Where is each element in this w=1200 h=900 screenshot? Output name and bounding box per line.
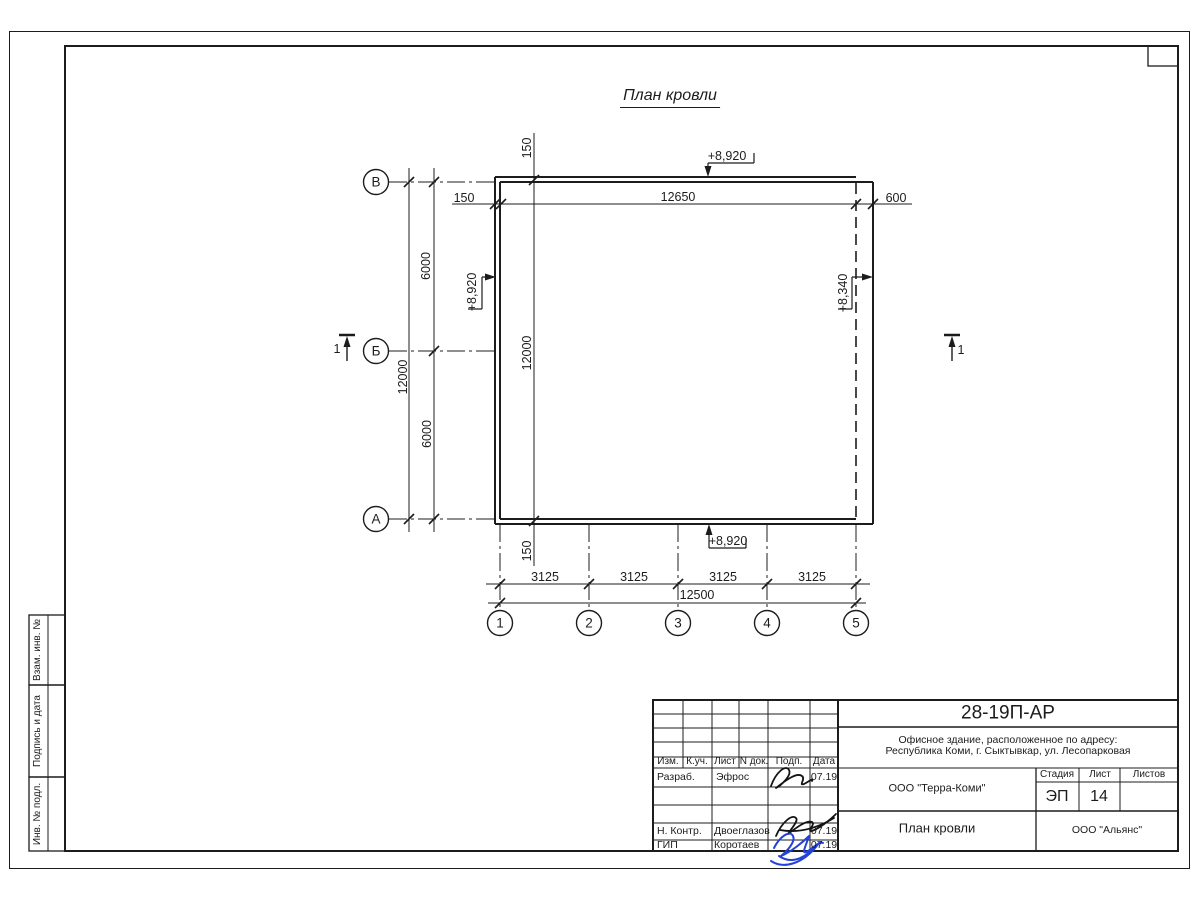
section-label-left: 1 <box>334 343 341 356</box>
rev-header-podp: Подп. <box>776 757 803 767</box>
dim-bottom-span-2: 3125 <box>620 571 648 584</box>
dim-offset-left: 150 <box>454 192 475 205</box>
dim-bottom-span-1: 3125 <box>531 571 559 584</box>
sheet-header: Лист <box>1089 770 1111 780</box>
dim-wall-span: 12000 <box>521 336 534 371</box>
level-mark-bottom: +8,920 <box>709 535 748 548</box>
project-address-line1: Офисное здание, расположенное по адресу: <box>899 735 1118 746</box>
rev-header-data: Дата <box>813 757 835 767</box>
plan-title: План кровли <box>620 88 720 108</box>
dim-bottom-total: 12500 <box>680 589 715 602</box>
drawing-sheet: План кровли 150 12650 600 12000 6000 600… <box>0 0 1200 900</box>
sheets-header: Листов <box>1133 770 1166 780</box>
axis-label-3: 3 <box>674 616 682 630</box>
row-date-developer: 07.19 <box>811 772 837 783</box>
axis-label-4: 4 <box>763 616 771 630</box>
drawing-linework <box>0 0 1200 900</box>
dim-offset-top: 150 <box>521 138 534 159</box>
dim-top-span: 12650 <box>661 191 696 204</box>
row-date-ncontrol: 07.19 <box>811 826 837 837</box>
row-date-gip: 07.19 <box>811 840 837 851</box>
axis-label-a: А <box>371 512 380 526</box>
stage-value: ЭП <box>1046 789 1069 805</box>
level-mark-top: +8,920 <box>708 150 747 163</box>
rev-header-izm: Изм. <box>657 757 678 767</box>
dim-left-upper: 6000 <box>420 252 433 280</box>
level-mark-left: +8,920 <box>466 273 479 312</box>
dim-bottom-span-4: 3125 <box>798 571 826 584</box>
titleblock-drawing-title: План кровли <box>899 822 976 835</box>
doc-number: 28-19П-АР <box>961 704 1055 723</box>
section-label-right: 1 <box>958 344 965 357</box>
axis-lines <box>389 182 856 611</box>
row-name-developer: Эфрос <box>716 772 749 783</box>
sheet-number: 14 <box>1090 789 1108 805</box>
corner-box <box>1148 46 1178 66</box>
roof-outline <box>495 177 873 524</box>
level-mark-right: +8,340 <box>837 274 850 313</box>
dim-left-lower: 6000 <box>421 420 434 448</box>
dimension-ticks <box>404 175 878 608</box>
axis-label-1: 1 <box>496 616 504 630</box>
axis-label-b: Б <box>372 344 381 358</box>
rev-header-list: Лист <box>714 757 736 767</box>
axis-label-5: 5 <box>852 616 860 630</box>
row-role-developer: Разраб. <box>657 772 695 783</box>
row-role-gip: ГИП <box>657 840 678 851</box>
company-name: ООО "Терра-Коми" <box>888 784 985 795</box>
dim-left-total: 12000 <box>397 360 410 395</box>
dim-bottom-span-3: 3125 <box>709 571 737 584</box>
row-role-ncontrol: Н. Контр. <box>657 826 702 837</box>
side-label-vzam: Взам. инв. № <box>33 619 43 681</box>
axis-label-v: В <box>371 175 380 189</box>
side-label-inv: Инв. № подл. <box>33 783 43 845</box>
axis-circles <box>364 170 869 636</box>
rev-header-ndok: N док. <box>740 757 769 767</box>
dim-offset-bottom: 150 <box>521 541 534 562</box>
project-address-line2: Республика Коми, г. Сыктывкар, ул. Лесоп… <box>886 746 1131 757</box>
rev-header-kuch: К.уч. <box>686 757 708 767</box>
axis-label-2: 2 <box>585 616 593 630</box>
row-name-ncontrol: Двоеглазов <box>714 826 770 837</box>
stage-header: Стадия <box>1040 770 1074 780</box>
side-label-podpis: Подпись и дата <box>33 695 43 767</box>
dim-right-overhang: 600 <box>886 192 907 205</box>
signature-developer <box>771 768 813 788</box>
section-marks <box>339 335 960 361</box>
row-name-gip: Коротаев <box>714 840 759 851</box>
contractor-name: ООО "Альянс" <box>1072 825 1142 836</box>
